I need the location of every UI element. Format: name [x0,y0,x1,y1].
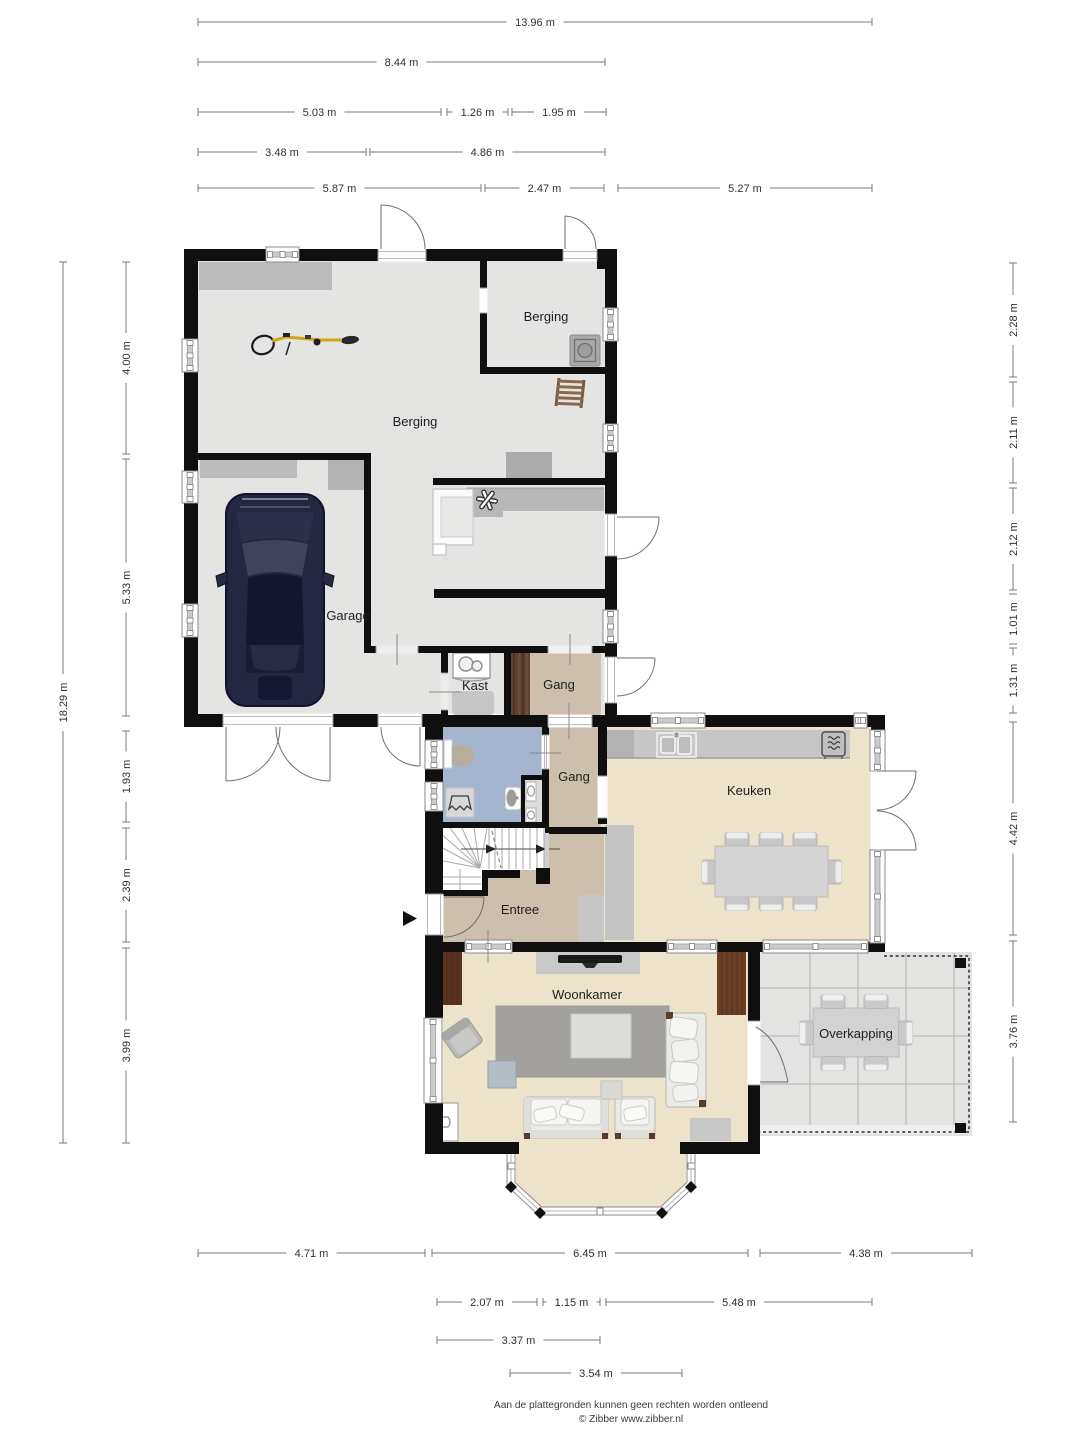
svg-text:1.93 m: 1.93 m [121,760,133,794]
svg-text:5.33 m: 5.33 m [121,571,133,605]
svg-text:5.87 m: 5.87 m [323,183,357,195]
svg-text:Garage: Garage [326,608,369,623]
svg-text:4.71 m: 4.71 m [295,1248,329,1260]
svg-text:3.37 m: 3.37 m [502,1335,536,1347]
svg-text:5.27 m: 5.27 m [728,183,762,195]
svg-text:© Zibber www.zibber.nl: © Zibber www.zibber.nl [579,1414,683,1425]
svg-text:3.54 m: 3.54 m [579,1368,613,1380]
svg-text:Woonkamer: Woonkamer [552,987,623,1002]
svg-text:18.29 m: 18.29 m [58,683,70,723]
svg-text:4.86 m: 4.86 m [471,147,505,159]
svg-text:6.45 m: 6.45 m [573,1248,607,1260]
svg-text:3.48 m: 3.48 m [265,147,299,159]
svg-text:Berging: Berging [524,309,569,324]
svg-text:Berging: Berging [393,414,438,429]
svg-text:Entree: Entree [501,902,539,917]
svg-text:4.38 m: 4.38 m [849,1248,883,1260]
svg-text:4.00 m: 4.00 m [121,341,133,375]
svg-text:Kast: Kast [462,678,488,693]
svg-text:2.07 m: 2.07 m [470,1297,504,1309]
svg-text:1.31 m: 1.31 m [1008,664,1020,698]
svg-text:13.96 m: 13.96 m [515,17,555,29]
svg-text:1.26 m: 1.26 m [461,107,495,119]
svg-text:3.76 m: 3.76 m [1008,1015,1020,1049]
svg-text:3.99 m: 3.99 m [121,1029,133,1063]
svg-text:Gang: Gang [558,769,590,784]
svg-text:2.47 m: 2.47 m [528,183,562,195]
svg-text:2.12 m: 2.12 m [1008,522,1020,556]
svg-text:5.48 m: 5.48 m [722,1297,756,1309]
svg-text:Keuken: Keuken [727,783,771,798]
svg-text:2.39 m: 2.39 m [121,868,133,902]
svg-text:2.28 m: 2.28 m [1008,303,1020,337]
svg-text:Gang: Gang [543,677,575,692]
svg-text:Overkapping: Overkapping [819,1026,893,1041]
svg-text:5.03 m: 5.03 m [303,107,337,119]
svg-text:1.15 m: 1.15 m [555,1297,589,1309]
svg-text:1.01 m: 1.01 m [1008,602,1020,636]
svg-text:1.95 m: 1.95 m [542,107,576,119]
svg-text:Aan de plattegronden kunnen ge: Aan de plattegronden kunnen geen rechten… [494,1400,768,1411]
svg-text:2.11 m: 2.11 m [1008,416,1020,449]
svg-text:4.42 m: 4.42 m [1008,812,1020,846]
svg-text:8.44 m: 8.44 m [385,57,419,69]
